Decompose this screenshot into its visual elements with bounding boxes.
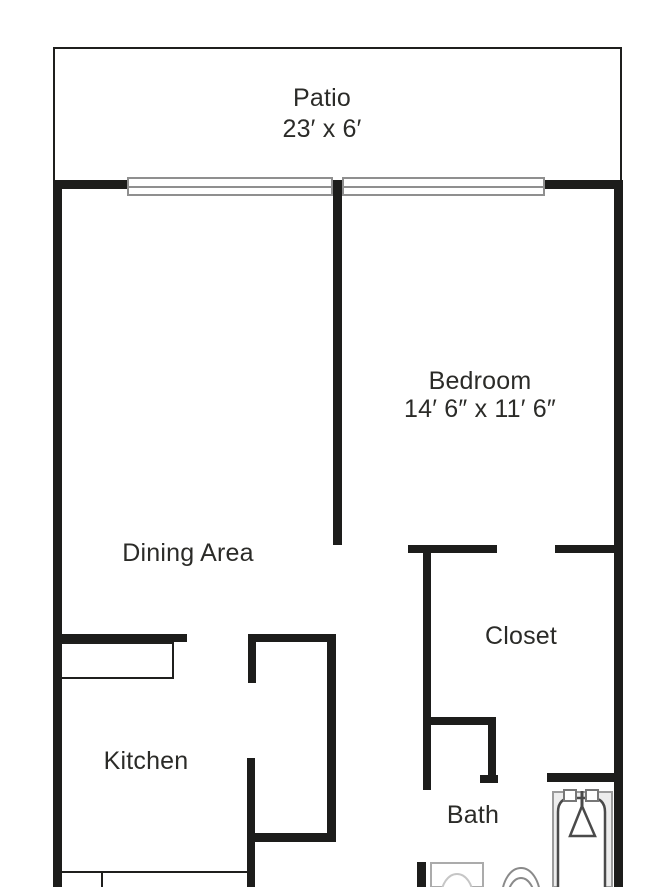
- room-label-kitchen: Kitchen: [104, 746, 189, 776]
- wall-kitchen-right-lower: [247, 758, 255, 887]
- faucet-handle-icon: [586, 790, 598, 801]
- wall-top-right-segment: [545, 180, 623, 189]
- room-dims: 23′ x 6′: [282, 114, 361, 145]
- room-name: Bath: [447, 800, 499, 830]
- room-label-dining: Dining Area: [122, 538, 253, 568]
- wall-bath-nook-right: [488, 717, 496, 783]
- wall-tub-alcove-top: [547, 773, 614, 782]
- kitchen-counter-edge: [62, 871, 247, 873]
- room-name: Dining Area: [122, 538, 253, 568]
- wall-bath-door-stub: [417, 862, 426, 887]
- sliding-door-track: [129, 186, 331, 188]
- wall-closet-left: [423, 545, 431, 790]
- room-label-closet: Closet: [485, 621, 557, 651]
- dining-counter: [60, 642, 174, 679]
- wall-exterior-left: [53, 180, 62, 887]
- toilet-bowl-icon: [502, 868, 540, 887]
- room-name: Kitchen: [104, 746, 189, 776]
- wall-kitchen-passage-top: [250, 634, 336, 642]
- bathtub-with-shower: [553, 790, 612, 887]
- floorplan: Patio 23′ x 6′ Bedroom 14′ 6″ x 11′ 6″ D…: [0, 0, 650, 887]
- shower-head-icon: [570, 806, 595, 836]
- room-label-bedroom: Bedroom 14′ 6″ x 11′ 6″: [404, 367, 556, 423]
- toilet: [502, 868, 540, 887]
- wall-bath-nook-foot: [480, 775, 498, 783]
- wall-bedroom-divider: [333, 180, 342, 545]
- kitchen-counter-divider: [101, 871, 103, 887]
- wall-utility-right: [327, 634, 336, 842]
- toilet-seat-icon: [507, 878, 535, 887]
- room-label-patio: Patio 23′ x 6′: [282, 83, 361, 145]
- sink-basin-icon: [441, 874, 473, 887]
- room-dims: 14′ 6″ x 11′ 6″: [404, 395, 556, 423]
- wall-dining-kitchen: [53, 634, 187, 642]
- wall-closet-top-left: [408, 545, 497, 553]
- wall-kitchen-right-upper: [248, 634, 256, 683]
- room-name: Closet: [485, 621, 557, 651]
- vanity-counter: [431, 863, 483, 887]
- sink-vanity: [431, 863, 483, 887]
- sliding-door-track: [344, 186, 543, 188]
- sliding-door-right: [342, 177, 545, 196]
- wall-top-left-segment: [53, 180, 127, 189]
- bathtub-deck: [553, 792, 612, 887]
- wall-bath-nook-top: [423, 717, 496, 725]
- wall-utility-bottom: [250, 833, 336, 842]
- room-name: Patio: [282, 83, 361, 114]
- room-label-bath: Bath: [447, 800, 499, 830]
- wall-exterior-right: [614, 180, 623, 887]
- room-name: Bedroom: [404, 367, 556, 395]
- faucet-handle-icon: [564, 790, 576, 801]
- bathtub-basin: [558, 798, 605, 887]
- wall-closet-top-right: [555, 545, 623, 553]
- sliding-door-left: [127, 177, 333, 196]
